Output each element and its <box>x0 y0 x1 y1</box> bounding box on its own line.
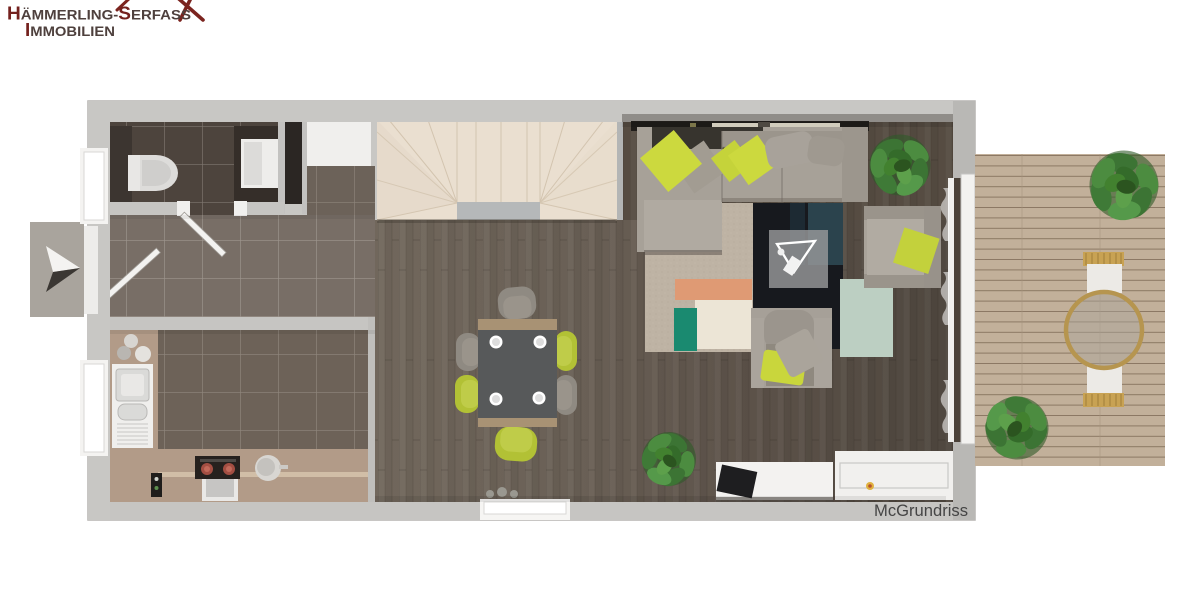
svg-text:McGrundriss: McGrundriss <box>874 502 968 520</box>
